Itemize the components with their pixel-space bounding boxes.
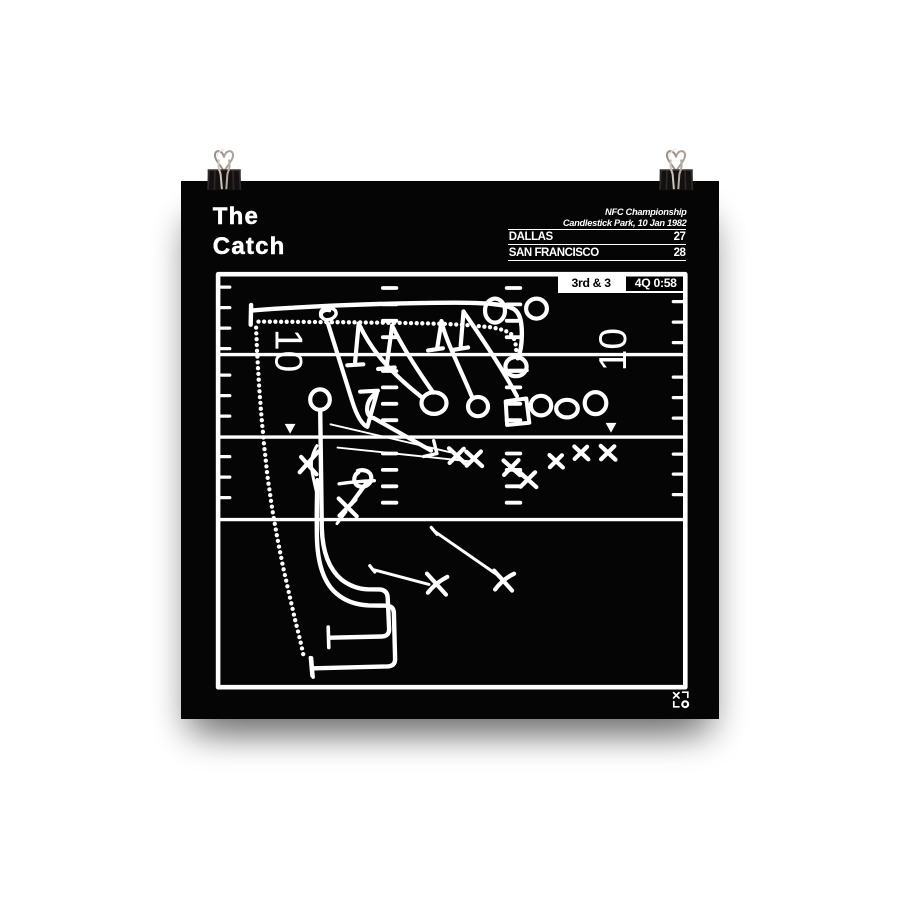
svg-text:10: 10 [266,329,309,372]
svg-text:10: 10 [592,328,635,371]
